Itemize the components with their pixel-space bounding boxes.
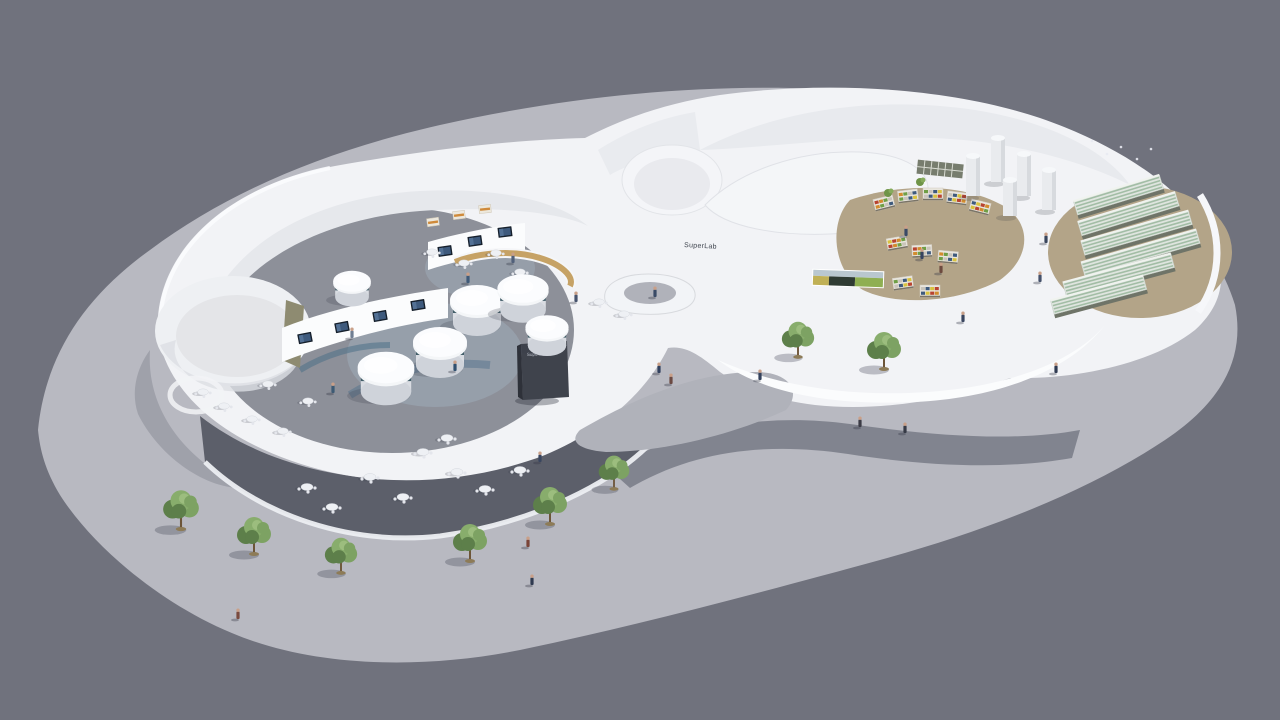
- billboard: [812, 269, 885, 289]
- wall-screen: [467, 235, 482, 247]
- product-shelf: [923, 188, 943, 200]
- bird: [1120, 146, 1123, 149]
- bird: [1091, 140, 1094, 143]
- product-shelf: [920, 285, 940, 297]
- bird: [1106, 153, 1109, 156]
- product-shelf: [897, 189, 918, 204]
- wall-screen: [437, 245, 452, 257]
- superlab-aerial-render: SuperLab SuperLab: [0, 0, 1280, 720]
- display-case: [479, 204, 492, 213]
- product-shelf: [937, 250, 958, 264]
- reception-desk: [605, 274, 695, 314]
- wall-screen: [497, 226, 512, 238]
- bird: [1136, 158, 1139, 161]
- display-case: [453, 210, 466, 219]
- display-case: [427, 217, 440, 227]
- bird: [1150, 148, 1153, 151]
- render-stage: SuperLab SuperLab: [0, 0, 1280, 720]
